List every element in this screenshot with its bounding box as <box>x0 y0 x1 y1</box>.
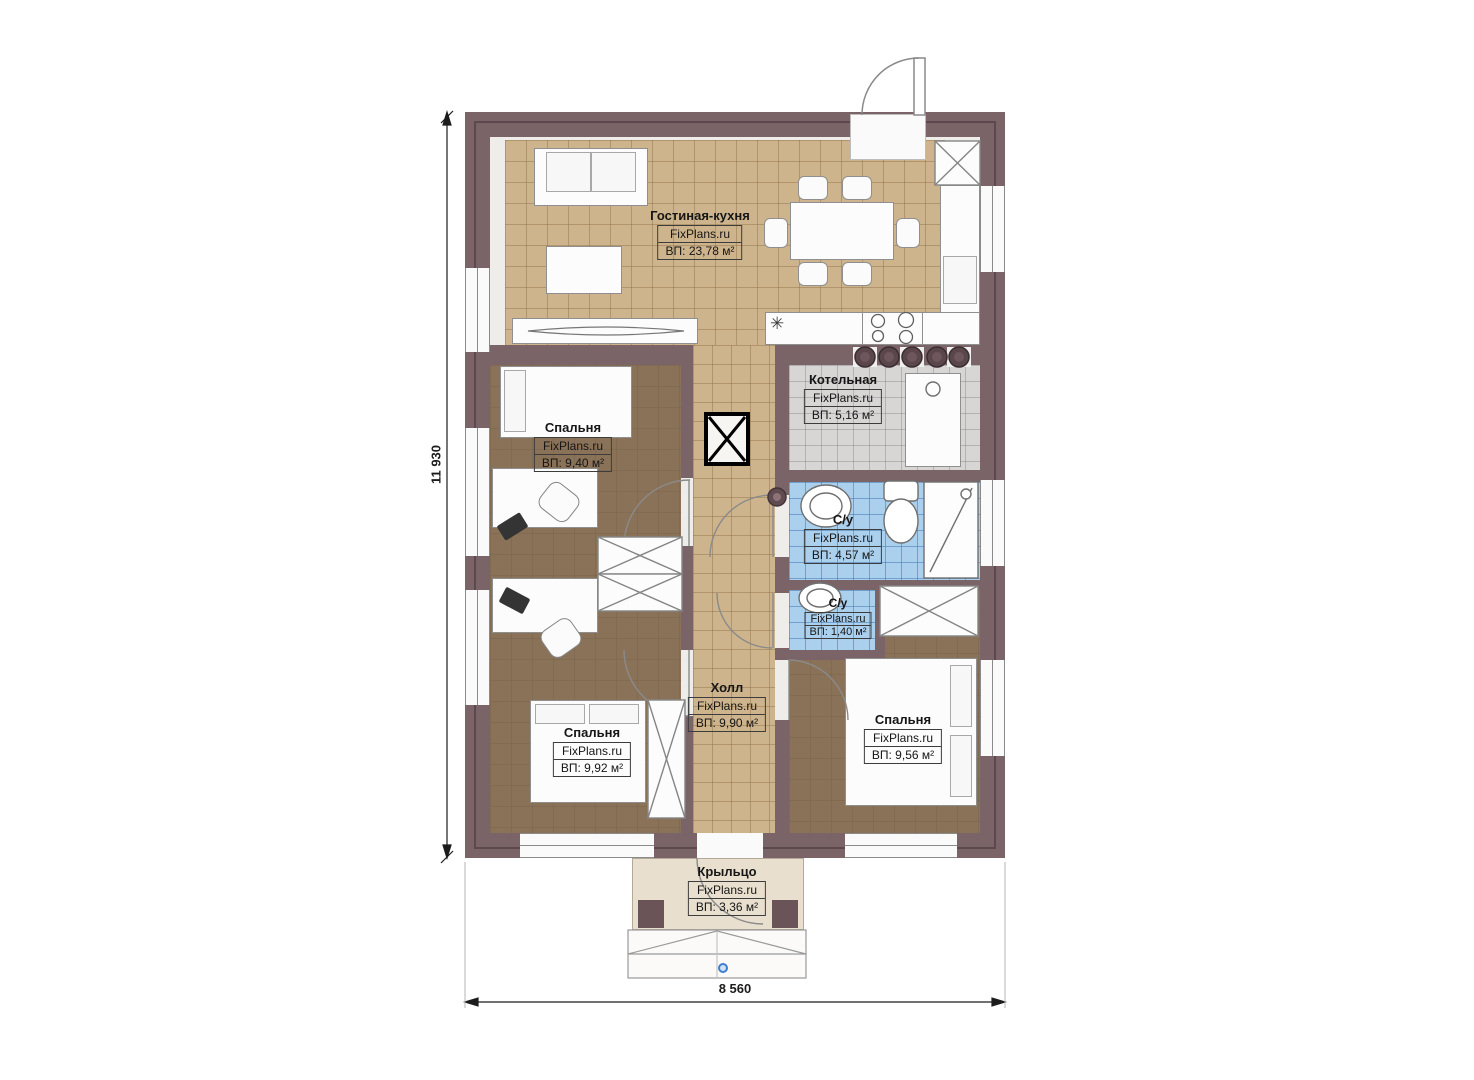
dining-chair <box>896 218 920 248</box>
window <box>980 480 1005 566</box>
ceiling-light-icon: ✳ <box>770 314 784 334</box>
room-area: ВП: 9,92 м² <box>554 759 630 776</box>
dining-chair <box>798 176 828 200</box>
porch-door-opening <box>697 833 763 858</box>
wall-segment <box>681 345 693 478</box>
room-info-box: FixPlans.ru ВП: 9,56 м² <box>864 729 942 764</box>
room-area: ВП: 5,16 м² <box>805 406 881 423</box>
room-label-boiler: Котельная FixPlans.ru ВП: 5,16 м² <box>804 372 882 424</box>
room-name: Спальня <box>553 725 631 740</box>
wall-segment <box>775 345 980 365</box>
window <box>980 660 1005 756</box>
coffee-table <box>546 246 622 294</box>
wall-segment <box>875 590 885 650</box>
room-info-box: FixPlans.ru ВП: 4,57 м² <box>804 529 882 564</box>
room-area: ВП: 9,90 м² <box>689 714 765 731</box>
window <box>845 833 957 858</box>
room-info-box: FixPlans.ru ВП: 1,40 м² <box>804 612 871 639</box>
dining-chair <box>764 218 788 248</box>
room-label-bedroom-bottom-left: Спальня FixPlans.ru ВП: 9,92 м² <box>553 725 631 777</box>
porch-post <box>638 900 664 928</box>
room-area: ВП: 9,40 м² <box>535 454 611 471</box>
bed-pillow <box>950 735 972 797</box>
sofa <box>534 148 648 206</box>
tv-console <box>512 318 698 344</box>
dining-chair <box>842 176 872 200</box>
room-area: ВП: 4,57 м² <box>805 546 881 563</box>
room-info-box: FixPlans.ru ВП: 3,36 м² <box>688 881 766 916</box>
wall-segment <box>775 648 789 660</box>
room-area: ВП: 23,78 м² <box>659 242 742 259</box>
room-info-box: FixPlans.ru ВП: 9,90 м² <box>688 697 766 732</box>
room-area: ВП: 1,40 м² <box>805 625 870 638</box>
window <box>465 428 490 556</box>
stove <box>862 312 923 345</box>
wall-segment <box>490 345 693 365</box>
hall-floor <box>693 345 775 833</box>
room-name: Спальня <box>534 420 612 435</box>
wall-segment <box>775 580 980 590</box>
room-info-box: FixPlans.ru ВП: 9,40 м² <box>534 437 612 472</box>
dining-chair <box>842 262 872 286</box>
window <box>980 186 1005 272</box>
kitchen-counter-right <box>940 185 980 330</box>
room-brand: FixPlans.ru <box>659 226 742 242</box>
room-area: ВП: 9,56 м² <box>865 746 941 763</box>
room-info-box: FixPlans.ru ВП: 9,92 м² <box>553 742 631 777</box>
room-label-bathroom-main: С/у FixPlans.ru ВП: 4,57 м² <box>804 512 882 564</box>
wall-segment <box>775 345 789 495</box>
wall-segment <box>681 716 693 833</box>
room-name: С/у <box>804 512 882 527</box>
window <box>465 590 490 705</box>
boiler-unit <box>905 373 961 467</box>
entrance-door <box>862 58 925 115</box>
wall-segment <box>789 470 980 482</box>
room-brand: FixPlans.ru <box>689 698 765 714</box>
bed-pillow <box>950 665 972 727</box>
dining-chair <box>798 262 828 286</box>
room-brand: FixPlans.ru <box>689 882 765 898</box>
wall-segment <box>681 546 693 650</box>
porch-steps <box>628 930 806 978</box>
room-brand: FixPlans.ru <box>554 743 630 759</box>
room-label-living: Гостиная-кухня FixPlans.ru ВП: 23,78 м² <box>650 208 750 260</box>
entrance-threshold <box>850 114 926 160</box>
room-name: Холл <box>688 680 766 695</box>
kitchen-appliance <box>943 256 977 304</box>
floor-plan-canvas: { "plan": { "brand": "FixPlans.ru", "roo… <box>0 0 1474 1080</box>
room-label-hall: Холл FixPlans.ru ВП: 9,90 м² <box>688 680 766 732</box>
room-label-bedroom-bottom-right: Спальня FixPlans.ru ВП: 9,56 м² <box>864 712 942 764</box>
room-brand: FixPlans.ru <box>805 530 881 546</box>
room-info-box: FixPlans.ru ВП: 23,78 м² <box>658 225 743 260</box>
room-info-box: FixPlans.ru ВП: 5,16 м² <box>804 389 882 424</box>
sofa-cushion <box>546 152 591 192</box>
survey-point-marker <box>718 963 728 973</box>
room-name: Крыльцо <box>688 864 766 879</box>
room-brand: FixPlans.ru <box>865 730 941 746</box>
porch-post <box>772 900 798 928</box>
room-brand: FixPlans.ru <box>535 438 611 454</box>
room-label-bathroom-small: С/у FixPlans.ru ВП: 1,40 м² <box>804 596 871 640</box>
dimension-width-label: 8 560 <box>695 981 775 996</box>
room-name: С/у <box>804 596 871 610</box>
room-brand: FixPlans.ru <box>805 613 870 625</box>
room-label-bedroom-top-left: Спальня FixPlans.ru ВП: 9,40 м² <box>534 420 612 472</box>
room-brand: FixPlans.ru <box>805 390 881 406</box>
room-label-porch: Крыльцо FixPlans.ru ВП: 3,36 м² <box>688 864 766 916</box>
wall-segment <box>775 720 789 833</box>
bed-pillow <box>504 370 526 432</box>
room-name: Котельная <box>804 372 882 387</box>
window <box>465 268 490 352</box>
window <box>520 833 654 858</box>
bed-pillow <box>589 704 639 724</box>
room-area: ВП: 3,36 м² <box>689 898 765 915</box>
dining-table <box>790 202 894 260</box>
room-name: Гостиная-кухня <box>650 208 750 223</box>
sofa-cushion <box>591 152 636 192</box>
dimension-height-label: 11 930 <box>429 425 444 505</box>
bed-pillow <box>535 704 585 724</box>
room-name: Спальня <box>864 712 942 727</box>
